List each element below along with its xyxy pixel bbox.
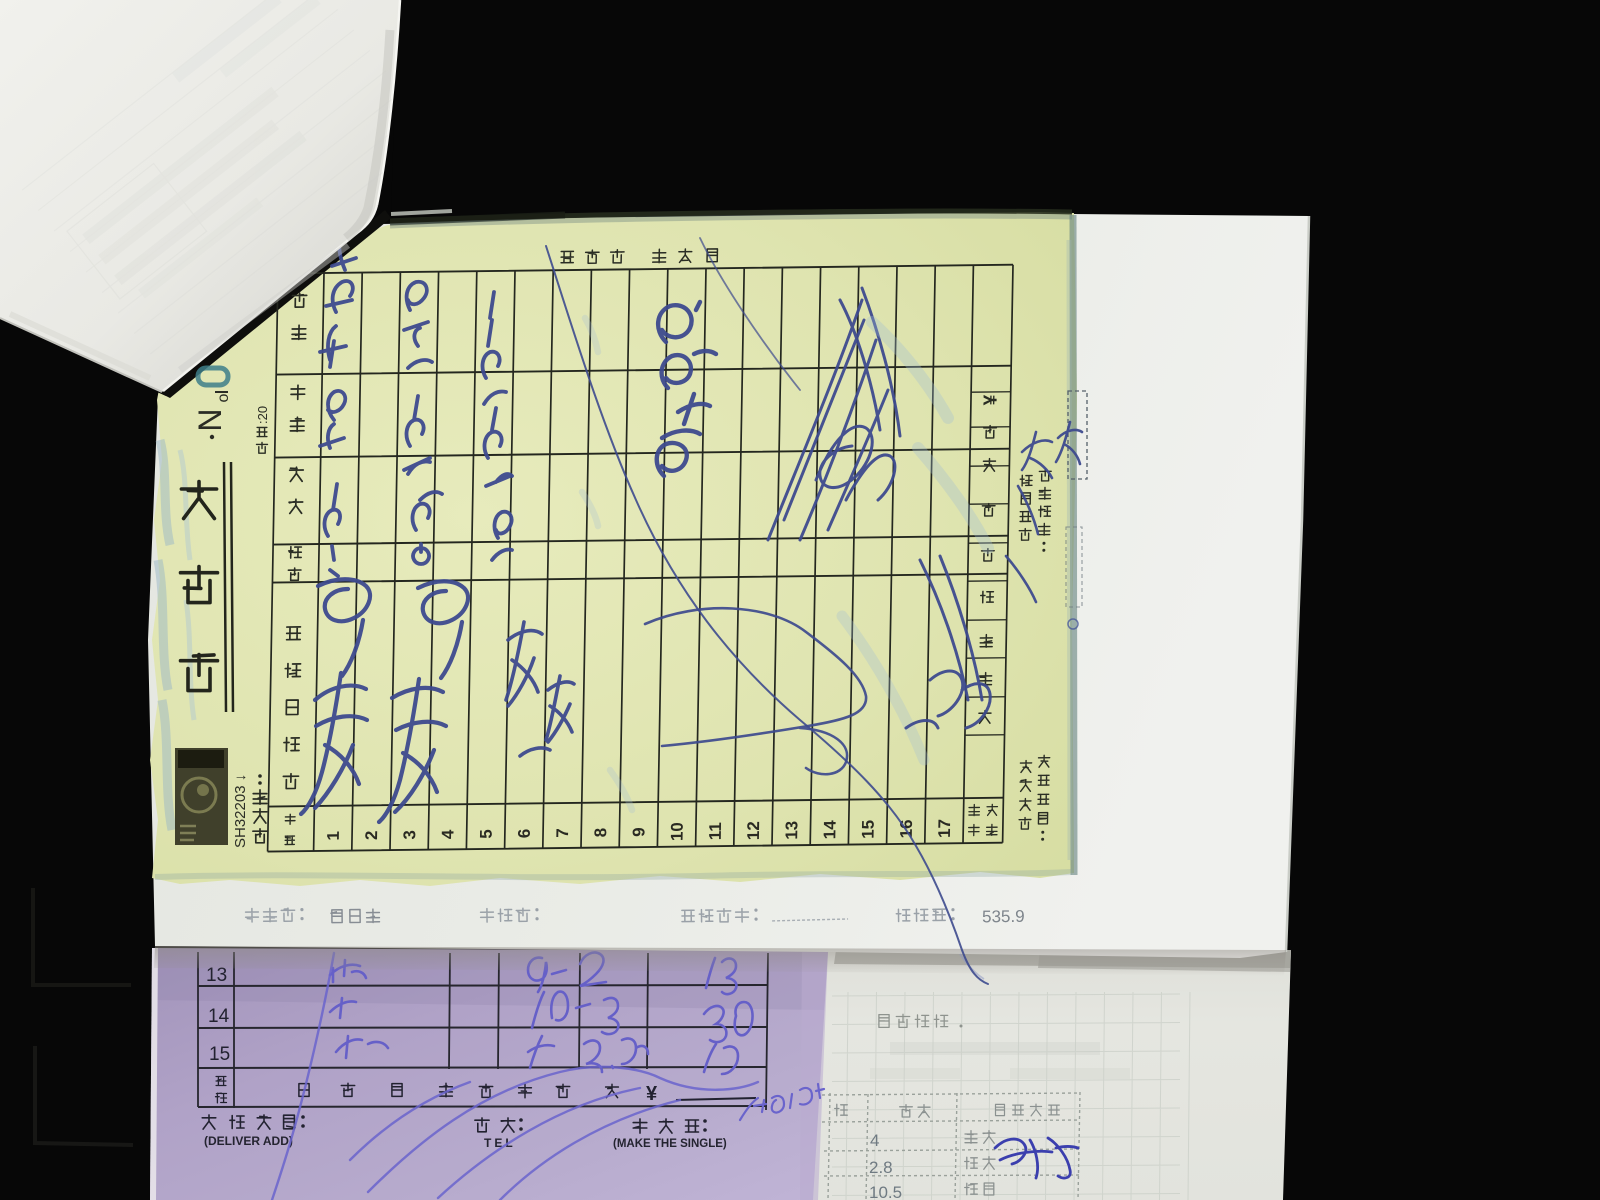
svg-text:10: 10	[667, 822, 686, 841]
svg-text:15: 15	[209, 1044, 230, 1065]
svg-text:8: 8	[591, 828, 610, 838]
svg-text:SH32203 ↓: SH32203 ↓	[232, 774, 249, 848]
svg-text:3: 3	[400, 830, 419, 840]
svg-text:14: 14	[208, 1006, 230, 1027]
svg-text:(MAKE THE SINGLE): (MAKE THE SINGLE)	[613, 1138, 727, 1150]
svg-text:o: o	[215, 393, 232, 402]
svg-text:9: 9	[629, 827, 648, 837]
svg-text:N: N	[192, 408, 228, 431]
svg-text:5: 5	[477, 829, 496, 839]
svg-text:7: 7	[553, 828, 572, 838]
svg-text:12: 12	[744, 821, 763, 840]
svg-text:¥: ¥	[646, 1083, 658, 1105]
svg-text:17: 17	[935, 819, 954, 838]
svg-text:2.8: 2.8	[869, 1158, 893, 1177]
svg-text:(DELIVER ADD): (DELIVER ADD)	[204, 1134, 293, 1148]
svg-text:4: 4	[870, 1131, 879, 1150]
svg-text:1: 1	[324, 831, 343, 841]
svg-text:10.5: 10.5	[869, 1183, 902, 1200]
svg-text:14: 14	[820, 820, 839, 840]
svg-text:15: 15	[858, 820, 877, 839]
svg-text:535.9: 535.9	[982, 907, 1025, 927]
svg-text:2: 2	[362, 830, 381, 840]
svg-text:13: 13	[782, 821, 801, 840]
svg-text:11: 11	[706, 822, 725, 840]
svg-text:4: 4	[438, 829, 457, 839]
svg-text:6: 6	[515, 829, 534, 839]
svg-text:¥: ¥	[980, 394, 1001, 405]
svg-text::20: :20	[255, 406, 270, 424]
